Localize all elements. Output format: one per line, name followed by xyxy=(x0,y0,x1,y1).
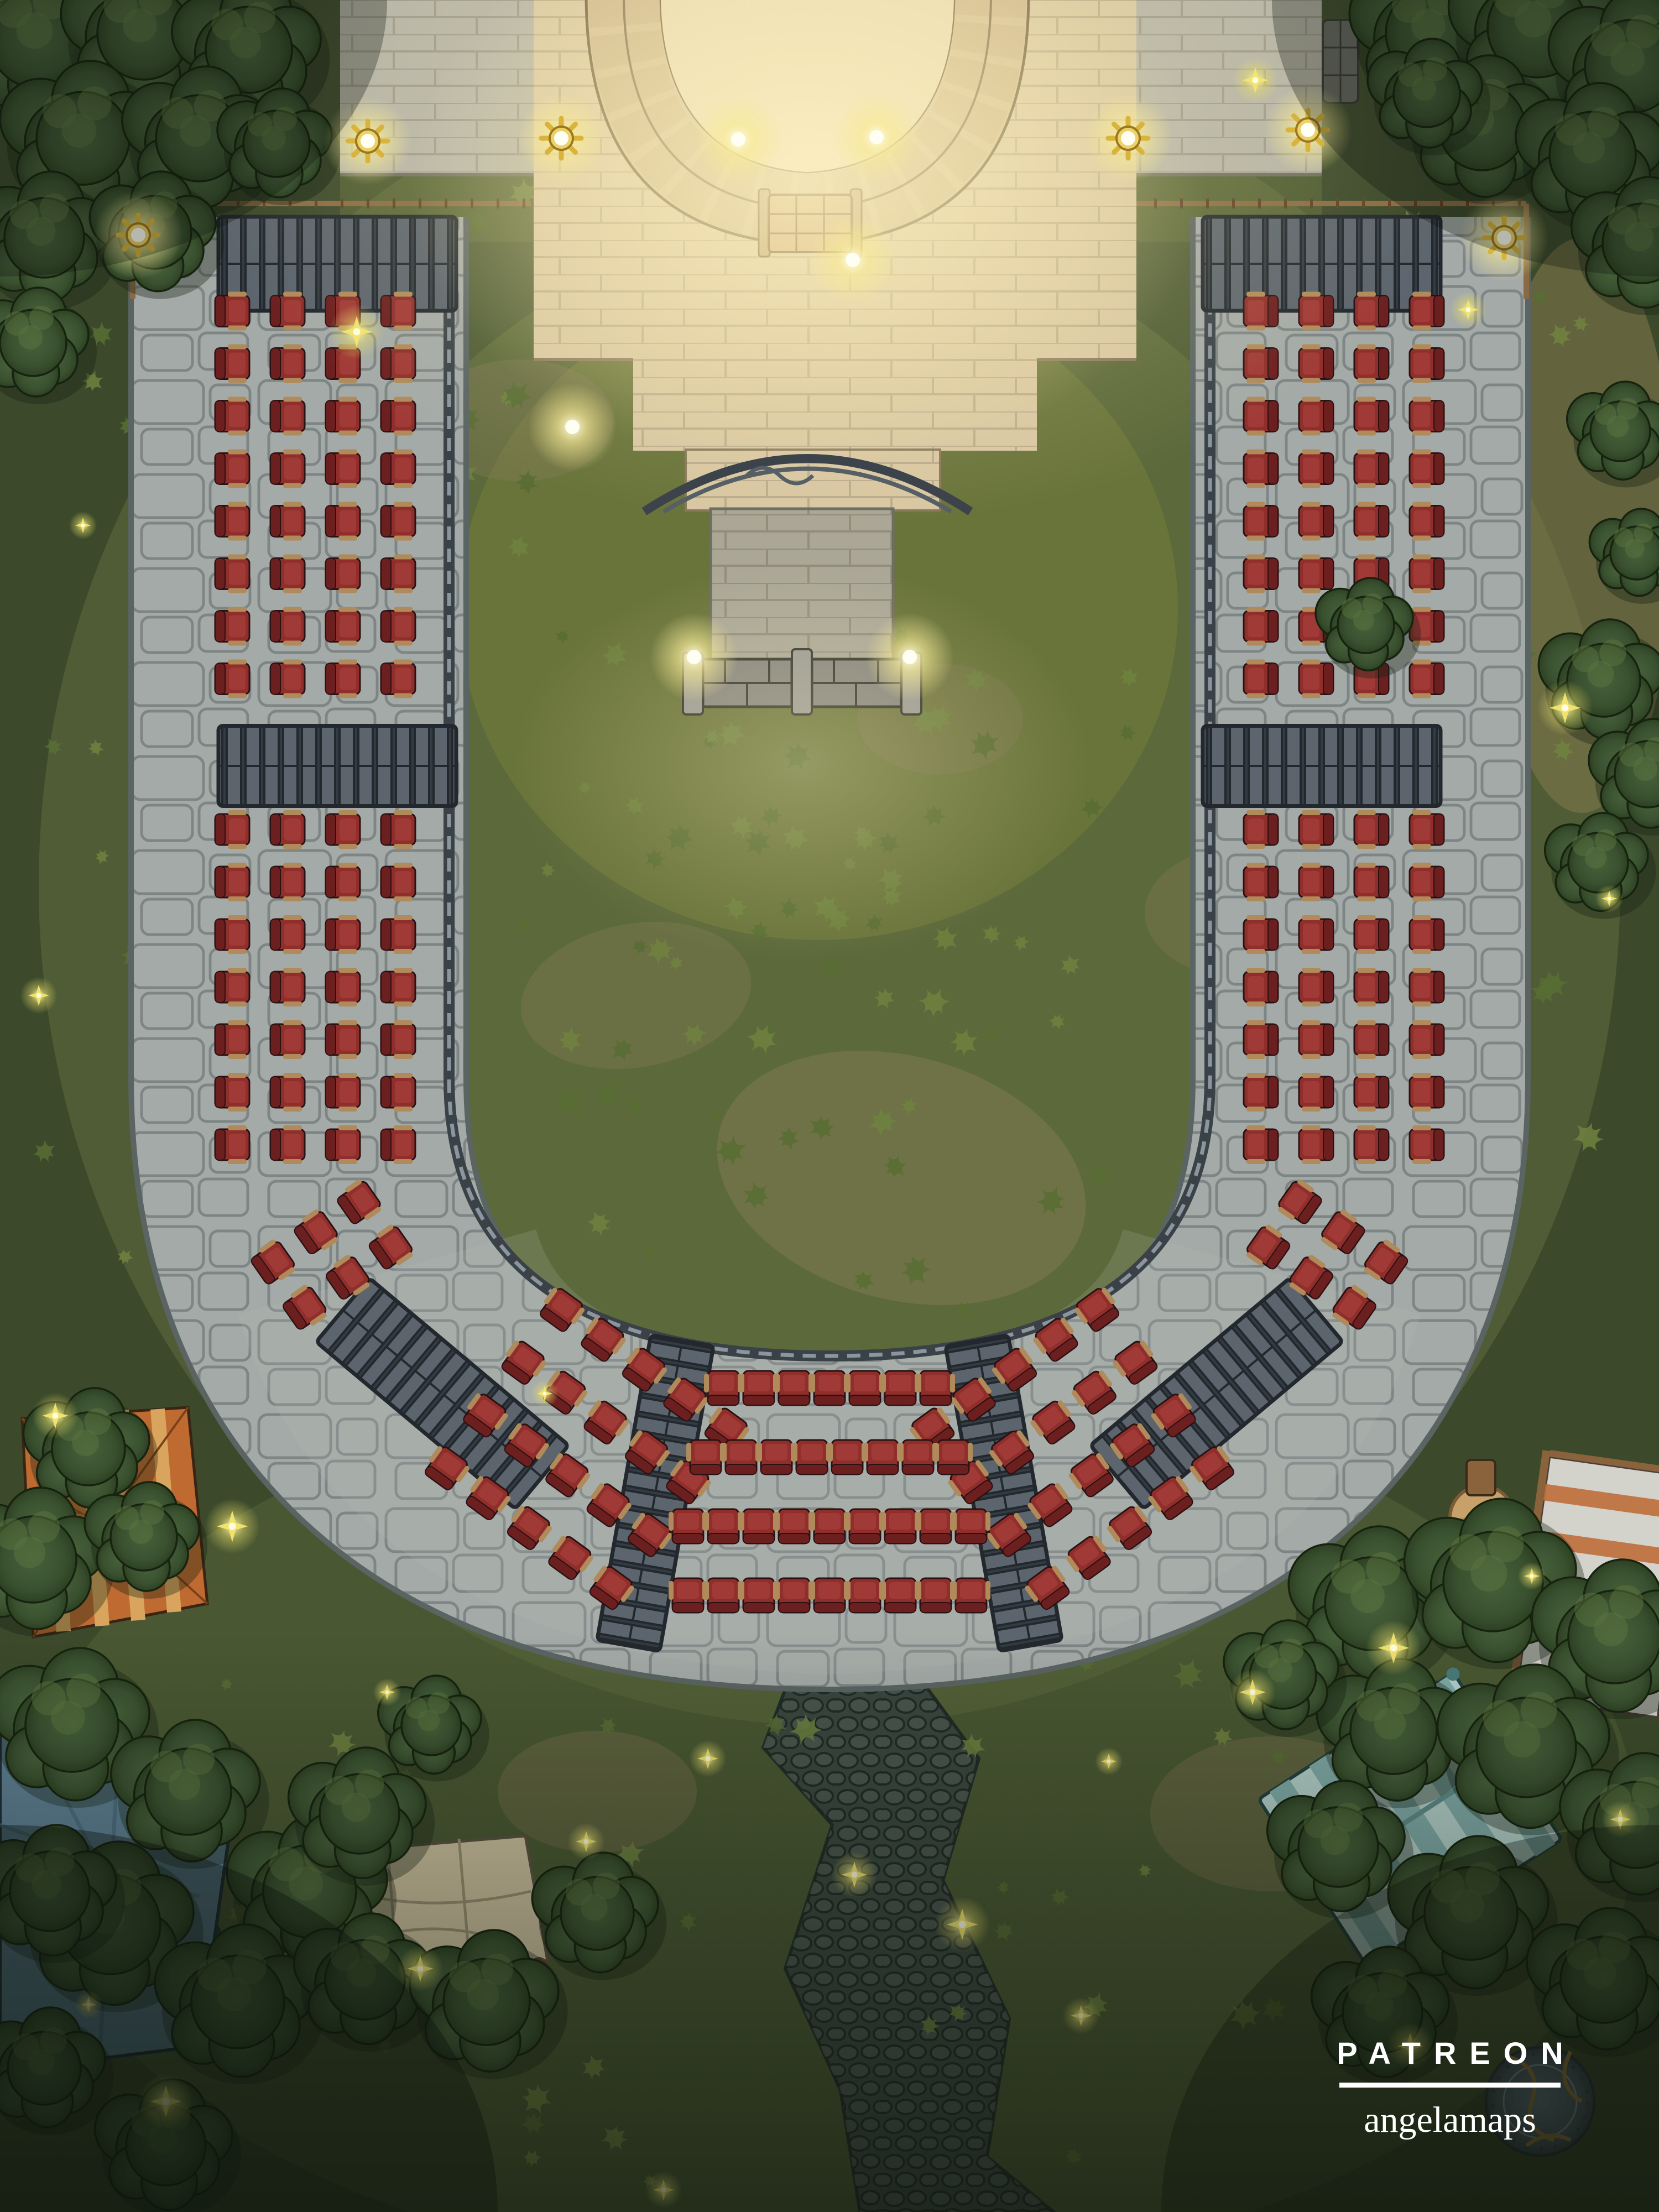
firefly-icon xyxy=(329,304,384,359)
chair xyxy=(381,555,415,593)
chair xyxy=(270,915,305,954)
battle-map: PATREON angelamaps xyxy=(0,0,1659,2212)
firefly-icon xyxy=(205,1499,260,1554)
chair xyxy=(1354,502,1389,541)
chair xyxy=(381,810,415,849)
chair xyxy=(270,810,305,849)
chair xyxy=(686,1440,725,1474)
firefly-icon xyxy=(531,1380,559,1408)
chair xyxy=(215,1073,249,1112)
chair xyxy=(1410,1125,1444,1164)
chair xyxy=(1410,292,1444,331)
chair xyxy=(1299,810,1333,849)
chair xyxy=(1410,345,1444,383)
chair xyxy=(1244,555,1278,593)
chair xyxy=(326,1125,360,1164)
chair xyxy=(1299,555,1333,593)
chair xyxy=(1354,450,1389,488)
map-illustration xyxy=(0,0,1659,2212)
chair xyxy=(1410,660,1444,698)
patreon-wordmark: PATREON xyxy=(1284,2036,1616,2070)
chair xyxy=(810,1509,849,1543)
chair xyxy=(704,1509,743,1543)
chair xyxy=(810,1578,849,1613)
chair xyxy=(326,660,360,698)
author-wordmark: angelamaps xyxy=(1284,2101,1616,2139)
chair xyxy=(1354,1125,1389,1164)
chair xyxy=(270,1020,305,1059)
chair xyxy=(1354,810,1389,849)
chair xyxy=(1299,968,1333,1006)
chair xyxy=(757,1440,796,1474)
chair xyxy=(326,968,360,1006)
chair xyxy=(1354,397,1389,436)
chair xyxy=(1244,502,1278,541)
chair xyxy=(1354,915,1389,954)
chair xyxy=(846,1371,884,1405)
chair xyxy=(381,915,415,954)
light-burst-icon xyxy=(808,216,897,304)
chair xyxy=(381,660,415,698)
chair xyxy=(326,450,360,488)
chair xyxy=(1299,502,1333,541)
chair xyxy=(381,1073,415,1112)
seating-group-center-row-3 xyxy=(669,1509,990,1543)
chair xyxy=(1244,1125,1278,1164)
chair xyxy=(1299,1073,1333,1112)
chair xyxy=(722,1440,760,1474)
chair xyxy=(739,1371,778,1405)
chair xyxy=(270,1125,305,1164)
chair xyxy=(1410,1073,1444,1112)
chair xyxy=(704,1578,743,1613)
firefly-icon xyxy=(1449,291,1486,328)
chair xyxy=(1244,863,1278,901)
chair xyxy=(739,1578,778,1613)
chair xyxy=(739,1509,778,1543)
chair xyxy=(934,1440,973,1474)
chair xyxy=(215,968,249,1006)
chair xyxy=(1410,915,1444,954)
chair xyxy=(1410,502,1444,541)
chair xyxy=(1299,660,1333,698)
chair xyxy=(270,502,305,541)
chair xyxy=(326,607,360,646)
chair xyxy=(1354,863,1389,901)
chair xyxy=(1410,397,1444,436)
chair xyxy=(215,863,249,901)
chair xyxy=(215,292,249,331)
chair xyxy=(270,450,305,488)
chair xyxy=(215,810,249,849)
chair xyxy=(775,1371,813,1405)
branding: PATREON angelamaps xyxy=(1284,2036,1616,2139)
chair xyxy=(215,1020,249,1059)
seating-group-center-row-4 xyxy=(669,1578,990,1613)
chair xyxy=(326,915,360,954)
chair xyxy=(952,1509,990,1543)
chair xyxy=(215,660,249,698)
firefly-icon xyxy=(1537,680,1593,735)
chair xyxy=(326,1020,360,1059)
chair xyxy=(1244,968,1278,1006)
chair xyxy=(1354,1073,1389,1112)
staircase xyxy=(1203,726,1441,806)
chair xyxy=(381,863,415,901)
chair xyxy=(381,968,415,1006)
chair xyxy=(326,555,360,593)
chair xyxy=(1244,810,1278,849)
light-burst-icon xyxy=(865,613,954,701)
chair xyxy=(381,1125,415,1164)
chair xyxy=(270,660,305,698)
light-burst-icon xyxy=(528,383,617,471)
chair xyxy=(899,1440,937,1474)
chair xyxy=(1244,1073,1278,1112)
chair xyxy=(916,1578,955,1613)
chair xyxy=(916,1371,955,1405)
chair xyxy=(215,555,249,593)
chair xyxy=(881,1509,920,1543)
chair xyxy=(881,1578,920,1613)
firefly-icon xyxy=(20,977,57,1014)
chair xyxy=(270,968,305,1006)
chair xyxy=(669,1509,707,1543)
chair xyxy=(1299,397,1333,436)
chair xyxy=(1299,1020,1333,1059)
chair xyxy=(846,1578,884,1613)
chair xyxy=(1244,450,1278,488)
chair xyxy=(704,1371,743,1405)
chair xyxy=(1299,450,1333,488)
chair xyxy=(1410,968,1444,1006)
firefly-icon xyxy=(1595,885,1624,913)
firefly-icon xyxy=(1232,57,1279,103)
chair xyxy=(810,1371,849,1405)
chair xyxy=(326,1073,360,1112)
chair xyxy=(1244,607,1278,646)
chair xyxy=(326,863,360,901)
chair xyxy=(669,1578,707,1613)
chair xyxy=(1410,450,1444,488)
firefly-icon xyxy=(69,512,97,540)
chair xyxy=(1410,1020,1444,1059)
chair xyxy=(846,1509,884,1543)
chair xyxy=(1244,915,1278,954)
chair xyxy=(881,1371,920,1405)
chair xyxy=(1354,1020,1389,1059)
chair xyxy=(1410,555,1444,593)
chair xyxy=(270,607,305,646)
light-burst-icon xyxy=(832,93,921,181)
chair xyxy=(215,345,249,383)
firefly-icon xyxy=(1518,1562,1546,1590)
chair xyxy=(775,1578,813,1613)
chair xyxy=(1299,1125,1333,1164)
chair xyxy=(381,450,415,488)
chair xyxy=(1244,660,1278,698)
chair xyxy=(863,1440,902,1474)
chair xyxy=(952,1578,990,1613)
chair xyxy=(215,502,249,541)
chair xyxy=(270,1073,305,1112)
chair xyxy=(1299,915,1333,954)
light-burst-icon xyxy=(650,613,738,701)
chair xyxy=(1410,810,1444,849)
light-burst-icon xyxy=(694,95,782,184)
chair xyxy=(215,397,249,436)
firefly-icon xyxy=(32,1392,79,1439)
chair xyxy=(215,915,249,954)
chair xyxy=(775,1509,813,1543)
lamp-sconce-icon xyxy=(1084,94,1172,182)
chair xyxy=(1410,863,1444,901)
chair xyxy=(1244,1020,1278,1059)
chair xyxy=(270,397,305,436)
chair xyxy=(215,450,249,488)
wooden-chair xyxy=(1467,1460,1495,1495)
chair xyxy=(1354,968,1389,1006)
chair xyxy=(270,863,305,901)
chair xyxy=(215,607,249,646)
chair xyxy=(270,555,305,593)
staircase xyxy=(218,726,456,806)
chair xyxy=(326,810,360,849)
chair xyxy=(828,1440,867,1474)
chair xyxy=(916,1509,955,1543)
chair xyxy=(326,502,360,541)
chair xyxy=(381,1020,415,1059)
lamp-sconce-icon xyxy=(517,94,606,182)
chair xyxy=(1299,863,1333,901)
brand-divider xyxy=(1339,2083,1561,2088)
chair xyxy=(381,502,415,541)
chair xyxy=(792,1440,831,1474)
chair xyxy=(215,1125,249,1164)
chair xyxy=(381,607,415,646)
chair xyxy=(326,397,360,436)
